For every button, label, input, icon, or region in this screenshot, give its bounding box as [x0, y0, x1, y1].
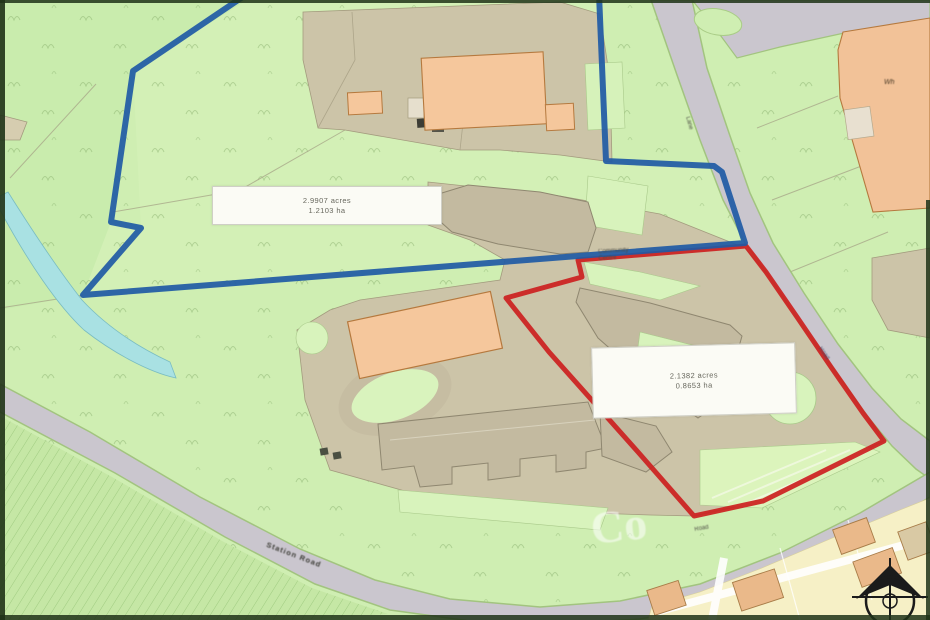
- watermark-text: Co: [588, 496, 649, 555]
- building-label: Community Centre: [598, 247, 629, 263]
- red-plot-area-label: 2.1382 acres 0.8653 ha: [591, 342, 797, 418]
- blue-plot-acres: 2.9907 acres: [303, 196, 351, 206]
- blue-plot-hectares: 1.2103 ha: [309, 206, 346, 216]
- map-canvas: [0, 0, 930, 620]
- red-plot-hectares: 0.8653 ha: [676, 380, 713, 391]
- building-name-fragment: Wh: [884, 79, 895, 86]
- site-plan-map: 2.9907 acres 1.2103 ha 2.1382 acres 0.86…: [0, 0, 930, 620]
- building-school-orange: [421, 52, 547, 130]
- blue-plot-area-label: 2.9907 acres 1.2103 ha: [212, 186, 442, 225]
